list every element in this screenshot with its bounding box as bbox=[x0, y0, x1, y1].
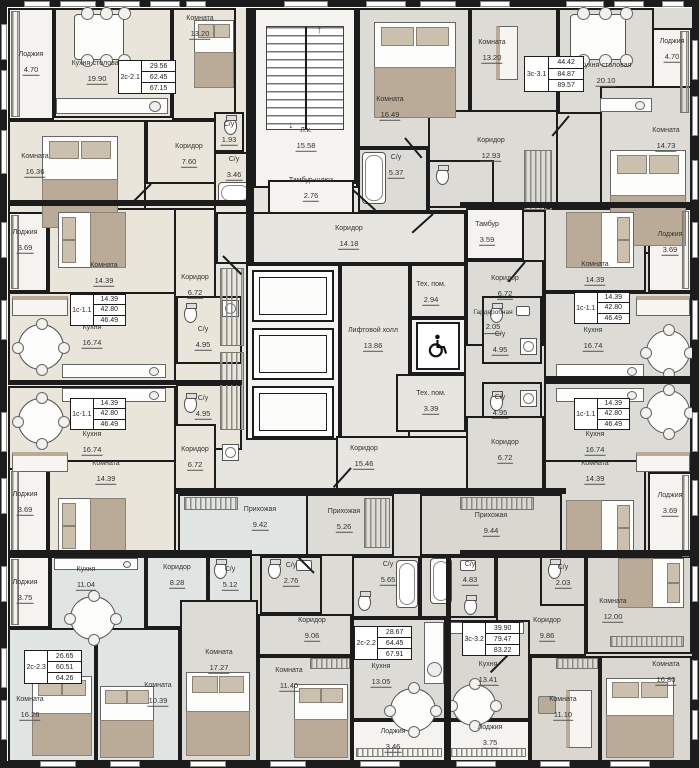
chair-icon bbox=[81, 54, 94, 67]
room-label: Комната14.39 bbox=[581, 460, 608, 486]
room-label: С/у5.65 bbox=[380, 561, 397, 587]
unit-area: 60.51 bbox=[48, 662, 81, 673]
bed bbox=[618, 558, 684, 608]
window-icon bbox=[692, 660, 698, 700]
room-name: Коридор bbox=[175, 143, 203, 151]
wardrobe-hatch bbox=[220, 352, 244, 430]
room-name: Лифтовой холл bbox=[348, 327, 398, 335]
room-area: 16.74 bbox=[585, 446, 606, 456]
room-label: Тамбур-шлюз2.76 bbox=[289, 177, 333, 203]
room-area: 13.86 bbox=[363, 342, 384, 352]
room-area: 4.70 bbox=[23, 66, 40, 76]
chair-icon bbox=[430, 705, 442, 717]
sink-icon bbox=[123, 561, 131, 568]
room-name: Лоджия bbox=[658, 492, 683, 500]
room-label: Кухня16.74 bbox=[583, 327, 604, 353]
wardrobe-hatch bbox=[310, 658, 350, 669]
window-icon bbox=[566, 1, 604, 7]
room-label: Коридор9.06 bbox=[298, 617, 326, 643]
sink-icon bbox=[149, 101, 161, 112]
room-label: С/у4.95 bbox=[195, 326, 212, 352]
wall bbox=[0, 761, 699, 768]
kitchen-counter bbox=[600, 98, 652, 112]
window-icon bbox=[1, 648, 7, 688]
room-area: 5.26 bbox=[336, 523, 353, 533]
dining-table-round bbox=[18, 324, 64, 370]
chair-icon bbox=[36, 318, 48, 330]
wardrobe-hatch bbox=[610, 636, 684, 647]
chair-icon bbox=[384, 705, 396, 717]
window-icon bbox=[1, 24, 7, 60]
room-area: 4.83 bbox=[462, 576, 479, 586]
chair-icon bbox=[12, 416, 24, 428]
room-su-2-03: С/у2.03 bbox=[540, 556, 586, 606]
room-label: Прихожая9.44 bbox=[475, 512, 507, 538]
window-icon bbox=[692, 222, 698, 258]
window-icon bbox=[692, 412, 698, 452]
room-area: 5.37 bbox=[388, 169, 405, 179]
room-label: Коридор9.86 bbox=[533, 617, 561, 643]
window-icon bbox=[1, 478, 7, 514]
room-area: 2.76 bbox=[283, 577, 300, 587]
room-label: Кухня16.74 bbox=[82, 324, 103, 350]
chair-icon bbox=[110, 613, 122, 625]
info-box-unit-2s-2-3: 2с-2.326.6560.5164.26 bbox=[24, 650, 82, 684]
room-label: Лифтовой холл13.86 bbox=[348, 327, 398, 353]
info-box-unit-3s-3-1: 3с-3.144.4284.8789.57 bbox=[524, 56, 584, 92]
chair-icon bbox=[408, 726, 420, 738]
total-area: 67.15 bbox=[142, 83, 175, 93]
wall bbox=[544, 376, 692, 381]
room-name: Комната bbox=[205, 649, 232, 657]
room-name: Кухня bbox=[583, 327, 604, 335]
room-area: 5.12 bbox=[222, 581, 239, 591]
room-name: Коридор bbox=[477, 137, 505, 145]
room-label: Тех. пом.3.39 bbox=[416, 390, 445, 416]
room-label: Коридор14.18 bbox=[335, 225, 363, 251]
sink-icon bbox=[427, 662, 442, 677]
wardrobe-hatch bbox=[682, 211, 689, 289]
room-tambur-3-59: Тамбур3.59 bbox=[466, 208, 524, 260]
window-icon bbox=[186, 1, 206, 7]
total-area: 89.57 bbox=[549, 80, 583, 91]
elevator-icon bbox=[252, 270, 334, 322]
window-icon bbox=[692, 40, 698, 80]
room-label: Комната14.39 bbox=[92, 460, 119, 486]
unit-type-label: 2с-2.1 bbox=[119, 61, 142, 93]
window-icon bbox=[40, 761, 76, 767]
room-tambur-shluz: Тамбур-шлюз2.76 bbox=[268, 180, 354, 216]
wall bbox=[8, 200, 246, 206]
sink-icon bbox=[149, 367, 159, 376]
living-area: 14.39 bbox=[94, 295, 125, 305]
bed bbox=[100, 686, 154, 758]
wall bbox=[460, 550, 692, 556]
room-label: Кухня16.74 bbox=[585, 431, 606, 457]
washing-machine-icon bbox=[520, 338, 537, 355]
stairs-up-arrow-icon: ↑ bbox=[317, 25, 322, 36]
living-area: 14.39 bbox=[598, 399, 629, 409]
room-name: Комната bbox=[92, 460, 119, 468]
room-area: 4.95 bbox=[195, 410, 212, 420]
room-area: 4.95 bbox=[492, 346, 509, 356]
window-icon bbox=[692, 480, 698, 516]
room-area: 15.58 bbox=[296, 142, 317, 152]
bed bbox=[186, 672, 250, 756]
chair-icon bbox=[36, 364, 48, 376]
room-corridor-9-06: Коридор9.06 bbox=[258, 614, 352, 656]
room-label: Тамбур3.59 bbox=[475, 221, 499, 247]
room-name: Коридор bbox=[181, 274, 209, 282]
wardrobe-hatch bbox=[556, 658, 598, 669]
wardrobe-hatch bbox=[184, 497, 238, 510]
dining-table-round bbox=[390, 688, 436, 732]
room-area: 2.94 bbox=[423, 296, 440, 306]
chair-icon bbox=[577, 7, 590, 20]
unit-area: 42.80 bbox=[598, 409, 629, 419]
room-name: Лоджия bbox=[19, 51, 44, 59]
window-icon bbox=[1, 70, 7, 110]
toilet-icon bbox=[184, 396, 197, 413]
chair-icon bbox=[58, 416, 70, 428]
wardrobe-hatch bbox=[682, 475, 689, 557]
window-icon bbox=[692, 566, 698, 602]
chair-icon bbox=[663, 384, 675, 396]
living-area: 29.56 bbox=[142, 61, 175, 72]
wall bbox=[8, 380, 242, 385]
room-area: 15.46 bbox=[354, 460, 375, 470]
window-icon bbox=[540, 761, 570, 767]
total-area: 46.49 bbox=[598, 420, 629, 429]
room-label: Коридор6.72 bbox=[181, 446, 209, 472]
info-box-unit-1s-1-1-rl: 1с-1.114.3942.8046.49 bbox=[574, 398, 630, 430]
unit-type-label: 1с-1.1 bbox=[575, 399, 598, 429]
room-area: 16.74 bbox=[82, 446, 103, 456]
room-name: С/у bbox=[195, 395, 212, 403]
room-name: С/у bbox=[388, 154, 405, 162]
total-area: 83.22 bbox=[486, 645, 519, 655]
room-area: 14.18 bbox=[339, 240, 360, 250]
room-area: 14.39 bbox=[94, 277, 115, 287]
room-area: 3.69 bbox=[17, 244, 34, 254]
room-name: Коридор bbox=[298, 617, 326, 625]
window-icon bbox=[284, 1, 328, 7]
toilet-icon bbox=[214, 562, 227, 579]
room-label: С/у4.95 bbox=[492, 331, 509, 357]
chair-icon bbox=[640, 347, 652, 359]
toilet-icon bbox=[184, 306, 197, 323]
bed bbox=[58, 498, 126, 554]
staircase: ↑↓ bbox=[266, 26, 344, 130]
room-name: Комната bbox=[652, 127, 679, 135]
living-area: 39.90 bbox=[486, 623, 519, 634]
room-name: Коридор bbox=[181, 446, 209, 454]
elevator-icon bbox=[252, 328, 334, 380]
room-area: 6.72 bbox=[497, 454, 514, 464]
unit-area: 79.47 bbox=[486, 634, 519, 645]
bed bbox=[58, 212, 126, 268]
room-label: Прихожая5.26 bbox=[328, 508, 360, 534]
info-box-unit-1s-1-1-ru: 1с-1.114.3942.8046.49 bbox=[574, 292, 630, 324]
room-name: Кухня bbox=[371, 663, 392, 671]
unit-area: 84.87 bbox=[549, 69, 583, 81]
chair-icon bbox=[663, 324, 675, 336]
window-icon bbox=[420, 1, 456, 7]
washing-machine-icon bbox=[222, 444, 239, 461]
room-name: Прихожая bbox=[475, 512, 507, 520]
unit-type-label: 2с-2.2 bbox=[355, 627, 378, 659]
living-area: 44.42 bbox=[549, 57, 583, 69]
dining-table-round bbox=[70, 596, 116, 640]
bathtub-icon bbox=[362, 152, 386, 204]
unit-type-label: 3с-3.2 bbox=[463, 623, 486, 655]
total-area: 67.91 bbox=[378, 649, 411, 659]
room-name: Комната bbox=[275, 667, 302, 675]
room-label: Лоджия4.70 bbox=[19, 51, 44, 77]
wall bbox=[460, 202, 692, 208]
window-icon bbox=[24, 1, 50, 7]
chair-icon bbox=[599, 54, 612, 67]
window-icon bbox=[366, 1, 406, 7]
room-name: Коридор bbox=[335, 225, 363, 233]
wardrobe-hatch bbox=[220, 268, 244, 346]
sofa bbox=[566, 690, 592, 748]
chair-icon bbox=[88, 590, 100, 602]
chair-icon bbox=[36, 392, 48, 404]
living-area: 28.67 bbox=[378, 627, 411, 638]
chair-icon bbox=[640, 407, 652, 419]
sofa bbox=[636, 452, 690, 472]
window-icon bbox=[456, 761, 496, 767]
room-name: Кухня bbox=[585, 431, 606, 439]
toilet-icon bbox=[224, 118, 237, 135]
window-icon bbox=[1, 566, 7, 602]
window-icon bbox=[480, 1, 510, 7]
chair-icon bbox=[58, 342, 70, 354]
sink-icon bbox=[635, 101, 645, 110]
armchair bbox=[538, 696, 556, 714]
room-area: 3.69 bbox=[662, 507, 679, 517]
room-area: 19.90 bbox=[87, 75, 108, 85]
info-box-unit-2s-2-1: 2с-2.129.5662.4567.15 bbox=[118, 60, 176, 94]
room-label: Коридор6.72 bbox=[491, 439, 519, 465]
info-box-unit-1s-1-1-ll: 1с-1.114.3942.8046.49 bbox=[70, 398, 126, 430]
room-name: Комната bbox=[652, 661, 679, 669]
room-label: С/у4.95 bbox=[195, 395, 212, 421]
room-label: Лоджия3.75 bbox=[478, 724, 503, 750]
unit-area: 64.45 bbox=[378, 638, 411, 649]
room-name: Тех. пом. bbox=[416, 281, 445, 289]
toilet-icon bbox=[464, 598, 477, 615]
chair-icon bbox=[81, 7, 94, 20]
room-name: Коридор bbox=[491, 275, 519, 283]
chair-icon bbox=[36, 438, 48, 450]
kitchen-counter bbox=[56, 98, 168, 114]
room-area: 9.06 bbox=[304, 632, 321, 642]
unit-type-label: 2с-2.3 bbox=[25, 651, 48, 683]
sofa bbox=[496, 26, 518, 80]
floor-plan: Лоджия4.70Кухня-столовая19.90Комната13.2… bbox=[0, 0, 699, 768]
room-label: С/у3.46 bbox=[226, 156, 243, 182]
room-wardrobe-ru: Гардеробная2.05 bbox=[458, 312, 528, 332]
room-name: Тамбур bbox=[475, 221, 499, 229]
window-icon bbox=[150, 1, 180, 7]
room-name: Кухня bbox=[82, 431, 103, 439]
unit-type-label: 1с-1.1 bbox=[575, 293, 598, 323]
wall bbox=[246, 8, 254, 264]
sink-icon bbox=[460, 560, 476, 571]
room-name: Лоджия bbox=[478, 724, 503, 732]
wardrobe-hatch bbox=[11, 471, 19, 553]
window-icon bbox=[610, 761, 650, 767]
room-tech-2-94: Тех. пом.2.94 bbox=[410, 264, 466, 318]
living-area: 14.39 bbox=[94, 399, 125, 409]
room-name: С/у bbox=[226, 156, 243, 164]
bathtub-icon bbox=[396, 560, 418, 608]
room-area: 3.59 bbox=[479, 236, 496, 246]
room-area: 9.44 bbox=[483, 527, 500, 537]
room-name: Кухня-столовая bbox=[72, 60, 123, 68]
chair-icon bbox=[663, 428, 675, 440]
wall bbox=[446, 556, 451, 762]
room-name: Коридор bbox=[163, 564, 191, 572]
room-name: Коридор bbox=[491, 439, 519, 447]
chair-icon bbox=[118, 7, 131, 20]
window-icon bbox=[1, 130, 7, 174]
toilet-icon bbox=[268, 562, 281, 579]
wheelchair-icon bbox=[416, 322, 460, 370]
window-icon bbox=[360, 761, 400, 767]
chair-icon bbox=[469, 720, 481, 732]
wardrobe-hatch bbox=[11, 215, 19, 289]
window-icon bbox=[1, 700, 7, 740]
wall bbox=[354, 8, 360, 184]
window-icon bbox=[104, 1, 140, 7]
wardrobe-hatch bbox=[356, 748, 442, 757]
dining-table-round bbox=[646, 390, 690, 434]
room-label: Гардеробная2.05 bbox=[473, 309, 512, 335]
info-box-unit-3s-3-2: 3с-3.239.9079.4783.22 bbox=[462, 622, 520, 656]
living-area: 26.65 bbox=[48, 651, 81, 662]
room-area: 14.39 bbox=[585, 276, 606, 286]
room-label: Кухня13.05 bbox=[371, 663, 392, 689]
room-area: 3.69 bbox=[17, 506, 34, 516]
window-icon bbox=[1, 412, 7, 452]
room-name: Коридор bbox=[533, 617, 561, 625]
kitchen-counter bbox=[54, 558, 138, 570]
room-area: 12.00 bbox=[603, 613, 624, 623]
window-icon bbox=[60, 1, 96, 7]
room-area: 14.39 bbox=[96, 475, 117, 485]
room-corridor-7-60: Коридор7.60 bbox=[146, 120, 216, 184]
unit-area: 62.45 bbox=[142, 72, 175, 83]
stairs-down-arrow-icon: ↓ bbox=[288, 120, 293, 131]
room-name: Коридор bbox=[350, 445, 378, 453]
room-area: 3.46 bbox=[226, 171, 243, 181]
room-area: 5.65 bbox=[380, 576, 397, 586]
chair-icon bbox=[620, 7, 633, 20]
bed bbox=[566, 212, 634, 268]
washing-machine-icon bbox=[520, 390, 537, 407]
chair-icon bbox=[599, 7, 612, 20]
unit-area: 42.80 bbox=[94, 305, 125, 315]
sofa bbox=[12, 296, 68, 316]
sofa bbox=[636, 296, 690, 316]
room-label: Коридор7.60 bbox=[175, 143, 203, 169]
bed bbox=[566, 500, 634, 556]
bed bbox=[606, 678, 674, 758]
room-name: Прихожая bbox=[328, 508, 360, 516]
chair-icon bbox=[490, 700, 502, 712]
window-icon bbox=[692, 96, 698, 136]
bed bbox=[294, 684, 348, 758]
room-area: 6.72 bbox=[187, 461, 204, 471]
room-name: С/у bbox=[195, 326, 212, 334]
room-label: Прихожая9.42 bbox=[244, 506, 276, 532]
window-icon bbox=[270, 761, 306, 767]
toilet-icon bbox=[436, 168, 449, 185]
wardrobe-hatch bbox=[450, 748, 526, 757]
window-icon bbox=[1, 300, 7, 340]
room-name: Прихожая bbox=[244, 506, 276, 514]
window-icon bbox=[110, 761, 140, 767]
window-icon bbox=[614, 1, 644, 7]
room-label: Кухня-столовая19.90 bbox=[72, 60, 123, 86]
wall bbox=[176, 488, 566, 494]
bed bbox=[32, 676, 92, 756]
room-area: 8.28 bbox=[169, 579, 186, 589]
room-area: 9.42 bbox=[252, 521, 269, 531]
unit-area: 42.80 bbox=[94, 409, 125, 419]
wall bbox=[8, 550, 252, 556]
room-label: Л.к.15.58 bbox=[296, 127, 317, 153]
room-area: 7.60 bbox=[181, 158, 198, 168]
wardrobe-hatch bbox=[680, 31, 689, 113]
dining-table bbox=[570, 14, 626, 60]
room-area: 4.70 bbox=[664, 53, 681, 63]
room-label: Коридор8.28 bbox=[163, 564, 191, 590]
chair-icon bbox=[620, 54, 633, 67]
living-area: 14.39 bbox=[598, 293, 629, 303]
room-label: Лоджия3.69 bbox=[658, 492, 683, 518]
total-area: 46.49 bbox=[598, 314, 629, 323]
room-area: 2.03 bbox=[555, 579, 572, 589]
dining-table-round bbox=[18, 398, 64, 444]
sink-icon bbox=[627, 367, 637, 376]
room-label: С/у5.37 bbox=[388, 154, 405, 180]
room-area: 3.69 bbox=[662, 246, 679, 256]
info-box-unit-2s-2-2: 2с-2.228.6764.4567.91 bbox=[354, 626, 412, 660]
room-area: 3.75 bbox=[17, 594, 34, 604]
room-area: 1.93 bbox=[221, 136, 238, 146]
unit-type-label: 1с-1.1 bbox=[71, 399, 94, 429]
room-label: Кухня16.74 bbox=[82, 431, 103, 457]
unit-type-label: 1с-1.1 bbox=[71, 295, 94, 325]
room-area: 13.05 bbox=[371, 678, 392, 688]
dining-table-round bbox=[452, 684, 496, 726]
sofa bbox=[12, 452, 68, 472]
chair-icon bbox=[88, 634, 100, 646]
total-area: 64.26 bbox=[48, 673, 81, 683]
window-icon bbox=[692, 300, 698, 340]
room-area: 9.86 bbox=[539, 632, 556, 642]
window-icon bbox=[1, 222, 7, 258]
window-icon bbox=[662, 1, 684, 7]
room-area: 16.74 bbox=[82, 339, 103, 349]
dining-table-round bbox=[646, 330, 690, 374]
room-tech-3-39: Тех. пом.3.39 bbox=[396, 374, 466, 432]
toilet-icon bbox=[548, 562, 561, 579]
